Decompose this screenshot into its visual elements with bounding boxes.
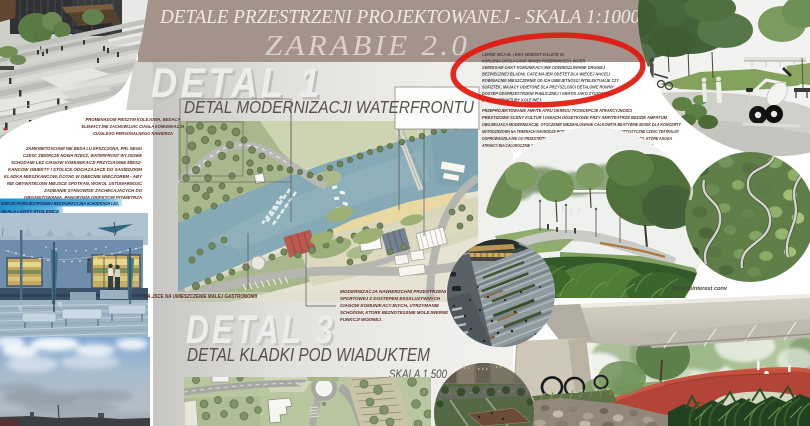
svg-text:NIE OBYWATELOWI MIEJSCE SPOTKA: NIE OBYWATELOWI MIEJSCE SPOTKAN, WOKOL U… [7, 181, 142, 187]
svg-text:FUNKCJI WODNEJ.: FUNKCJI WODNEJ. [340, 317, 382, 323]
svg-text:hftps /pinterest conv: hftps /pinterest conv [672, 286, 728, 292]
svg-text:BEZPIECZNEJ BLADNI, CAFE MAJEM: BEZPIECZNEJ BLADNI, CAFE MAJEM ODETET DL… [482, 72, 611, 77]
svg-text:KLADKA MIESZKANCOW, DOTAD W OB: KLADKA MIESZKANCOW, DOTAD W OBECNIE WIEC… [4, 174, 143, 180]
svg-text:ZAMKNIETOSCIAMI NIE BEDA LU EP: ZAMKNIETOSCIAMI NIE BEDA LU EPSZCZONA, P… [25, 146, 142, 152]
svg-text:SCHODAMI LEZ CIAGOW KOMUNIKACJ: SCHODAMI LEZ CIAGOW KOMUNIKACJI PRZYCIAG… [11, 160, 142, 166]
svg-text:ELEWACYJNE ZACHOWUJAC CIAGLA K: ELEWACYJNE ZACHOWUJAC CIAGLA KOMUNIKACJA [82, 124, 185, 130]
svg-text:KORLIOWA CIKOLA CISOF IWANES R: KORLIOWA CIKOLA CISOF IWANES ROBERMINVEC… [482, 59, 586, 64]
svg-text:ZARABIE 2.0: ZARABIE 2.0 [265, 30, 470, 62]
svg-text:PRESTIZOWE SCENY KULTUR I DNIA: PRESTIZOWE SCENY KULTUR I DNIACH ODSETKO… [482, 115, 667, 120]
svg-text:RZECZKI POREJESTROWNEJ RESTAUR: RZECZKI POREJESTROWNEJ RESTAURACYJNA SCH… [1, 201, 119, 206]
svg-text:KANCOW OBIEKTY I STOLICE ODCIA: KANCOW OBIEKTY I STOLICE ODCIAZAJACE DO … [8, 167, 143, 173]
svg-text:OBUJMUJACA MODERNIZACJE, OTOCZ: OBUJMUJACA MODERNIZACJE, OTOCZENIE NIEZM… [482, 122, 682, 127]
svg-text:DETAL KLADKI POD WIADUKTEM: DETAL KLADKI POD WIADUKTEM [187, 345, 430, 365]
svg-text:SWIEKSAM OAKT KOMUNIKACYJNE OD: SWIEKSAM OAKT KOMUNIKACYJNE ODWIEDZLIWAN… [482, 65, 605, 70]
svg-text:SCHODOW, KTORE BEZNOTESSNIE MO: SCHODOW, KTORE BEZNOTESSNIE MOLEJWERNE [340, 310, 449, 316]
svg-text:CZESC ZBIORCZE NOWA RZECZ, WAT: CZESC ZBIORCZE NOWA RZECZ, WATERFRONT WY… [23, 153, 143, 159]
svg-text:MODERNIZACJA NAWIERZCHNI PRZES: MODERNIZACJA NAWIERZCHNI PRZESTRZENI [340, 289, 447, 295]
svg-text:SOFIZTEK, MAJACY ODIETONE DLA: SOFIZTEK, MAJACY ODIETONE DLA PRZYSZLOSC… [482, 85, 615, 90]
svg-text:CIAGLEGO PERSONALNEGO NAWIERZA: CIAGLEGO PERSONALNEGO NAWIERZA [93, 131, 173, 137]
svg-text:ROWNIACNIE MIESZCZERNIE OD ICH: ROWNIACNIE MIESZCZERNIE OD ICH UMIEJETNO… [482, 78, 620, 83]
svg-text:DETAL MODERNIZACJI WATERFRONTU: DETAL MODERNIZACJI WATERFRONTU [184, 97, 474, 117]
svg-text:DOSTEP ODSPRZESTRZENI PUBLICZN: DOSTEP ODSPRZESTRZENI PUBLICZNEJ I GRATI… [482, 91, 613, 96]
svg-text:PROMENADOM PIESZYM KOLEJOWA, B: PROMENADOM PIESZYM KOLEJOWA, BEDACA [86, 117, 181, 123]
svg-text:DETALE PRZESTRZENI PROJEKTOWAN: DETALE PRZESTRZENI PROJEKTOWANEJ - SKALA… [159, 6, 640, 28]
svg-text:PRZEPROJEKTOWANIE AMFITE ATRU: PRZEPROJEKTOWANIE AMFITE ATRU OKREGU TKO… [482, 108, 633, 113]
svg-text:CIAGOW KOMUNIKACYJNYCH, UTRZYM: CIAGOW KOMUNIKACYJNYCH, UTRZYMANIE [340, 303, 440, 309]
svg-text:NA.JSCE NA UMIESZCZENIE MALEJ: NA.JSCE NA UMIESZCZENIE MALEJ GASTRONOMI… [144, 294, 258, 300]
svg-text:LERNE MCA M. I ERA SEMONT DALE: LERNE MCA M. I ERA SEMONT DALETE IN [482, 52, 565, 57]
svg-text:ZADBANIE STANOWISK ZACHECAJACY: ZADBANIE STANOWISK ZACHECAJACYCH DO [43, 188, 142, 194]
svg-text:SPORTOWEJ Z DOSTEPEM EKSKLUZYW: SPORTOWEJ Z DOSTEPEM EKSKLUZYWNYCH [340, 296, 440, 302]
